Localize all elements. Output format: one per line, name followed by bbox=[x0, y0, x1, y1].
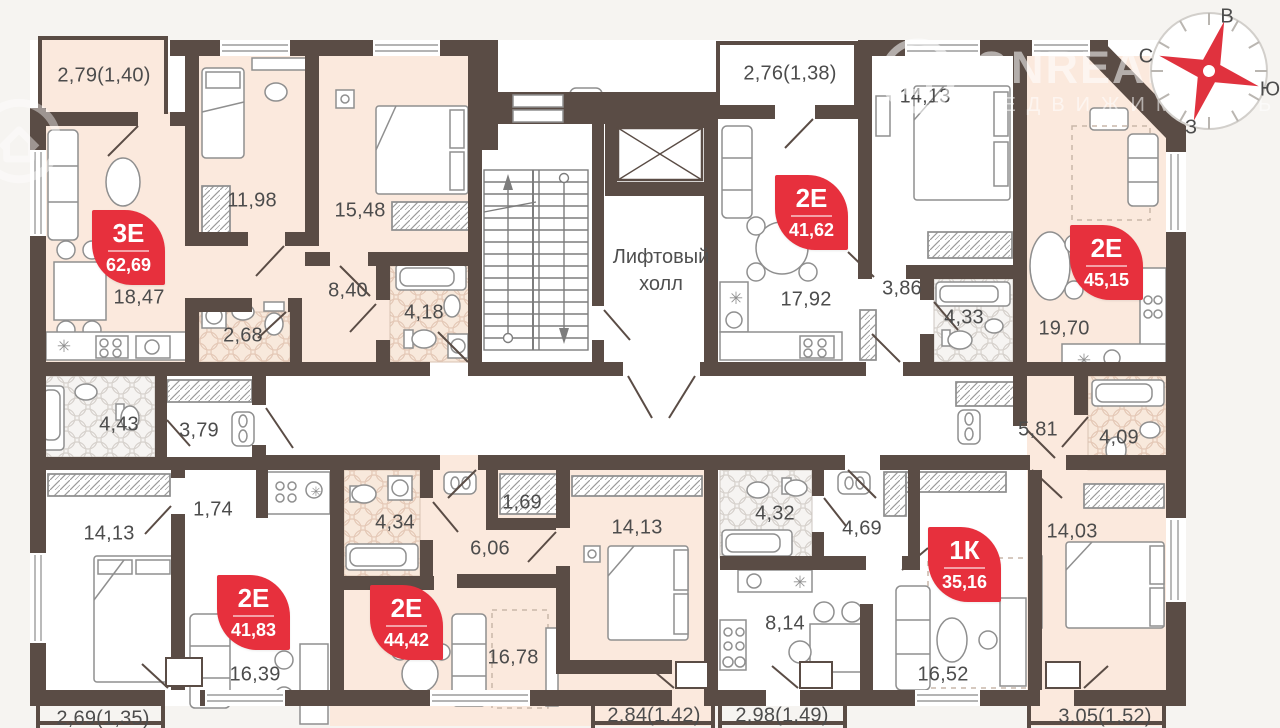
room-area-label: 11,98 bbox=[227, 190, 277, 213]
badge-divider bbox=[386, 625, 426, 627]
room-area-label: 6,06 bbox=[470, 538, 510, 561]
svg-text:✳: ✳ bbox=[57, 337, 71, 356]
badge-divider bbox=[108, 250, 148, 252]
apartment-area: 35,16 bbox=[942, 572, 987, 593]
compass-label-south: Ю bbox=[1260, 79, 1280, 102]
compass-label-east: В bbox=[1220, 6, 1233, 29]
room-area-label: 8,14 bbox=[765, 613, 805, 636]
room-area-label: 18,47 bbox=[113, 287, 164, 310]
apartment-area: 45,15 bbox=[1084, 270, 1129, 291]
room-area-label: 8,40 bbox=[328, 280, 368, 303]
elevator bbox=[618, 128, 702, 180]
badge-divider bbox=[233, 615, 273, 617]
room-area-label: 14,13 bbox=[899, 86, 950, 109]
room-area-label: 4,34 bbox=[375, 512, 415, 535]
room-area-label: 4,32 bbox=[755, 503, 795, 526]
room-area-label: 3,05(1,52) bbox=[1058, 706, 1151, 728]
room-area-label: 16,52 bbox=[917, 664, 968, 687]
svg-text:✳: ✳ bbox=[311, 484, 322, 499]
apartment-type: 2Е bbox=[796, 185, 828, 211]
badge-divider bbox=[791, 215, 831, 217]
room-area-label: 4,18 bbox=[404, 302, 444, 325]
badge-divider bbox=[944, 567, 984, 569]
room-area-label: 17,92 bbox=[780, 289, 831, 312]
floor-plan-canvas: ✳✳✳ ✳✳ bbox=[0, 0, 1280, 728]
svg-text:✳: ✳ bbox=[729, 289, 743, 308]
room-area-label: 19,70 bbox=[1038, 318, 1089, 341]
compass-rose bbox=[1145, 7, 1275, 137]
room-area-label: 2,84(1,42) bbox=[607, 705, 700, 728]
lift-hall-label: Лифтовый холл bbox=[599, 244, 723, 298]
room-area-label: 4,43 bbox=[99, 414, 139, 437]
compass-label-west: З bbox=[1185, 117, 1197, 140]
room-area-label: 14,13 bbox=[83, 523, 134, 546]
room-area-label: 2,76(1,38) bbox=[743, 63, 836, 86]
apartment-area: 44,42 bbox=[384, 630, 429, 651]
apartment-type: 1К bbox=[949, 537, 979, 563]
apartment-type: 2Е bbox=[238, 585, 270, 611]
room-area-label: 3,79 bbox=[179, 420, 219, 443]
room-area-label: 2,68 bbox=[223, 325, 263, 348]
floor-plan-drawing: ✳✳✳ ✳✳ bbox=[0, 0, 1280, 728]
apartment-type: 3Е bbox=[113, 220, 145, 246]
apartment-area: 41,83 bbox=[231, 620, 276, 641]
room-area-label: 16,78 bbox=[487, 647, 538, 670]
room-area-label: 4,69 bbox=[842, 518, 882, 541]
apartment-type: 2Е bbox=[1091, 235, 1123, 261]
room-area-label: 5,81 bbox=[1018, 419, 1058, 442]
room-area-label: 3,86 bbox=[882, 278, 922, 301]
apartment-type: 2Е bbox=[391, 595, 423, 621]
room-area-label: 2,79(1,40) bbox=[57, 65, 150, 88]
room-area-label: 14,13 bbox=[611, 517, 662, 540]
room-area-label: 2,98(1,49) bbox=[735, 705, 828, 728]
room-area-label: 1,74 bbox=[193, 499, 233, 522]
room-area-label: 14,03 bbox=[1046, 521, 1097, 544]
room-area-label: 4,33 bbox=[944, 307, 984, 330]
badge-divider bbox=[1086, 265, 1126, 267]
room-area-label: 16,39 bbox=[229, 664, 280, 687]
compass-label-north: С bbox=[1139, 46, 1153, 69]
apartment-area: 41,62 bbox=[789, 220, 834, 241]
room-area-label: 15,48 bbox=[334, 200, 385, 223]
apartment-area: 62,69 bbox=[106, 255, 151, 276]
room-area-label: 2,69(1,35) bbox=[56, 708, 149, 728]
room-area-label: 4,09 bbox=[1099, 427, 1139, 450]
room-area-label: 1,69 bbox=[502, 492, 542, 515]
svg-text:✳: ✳ bbox=[793, 573, 807, 592]
